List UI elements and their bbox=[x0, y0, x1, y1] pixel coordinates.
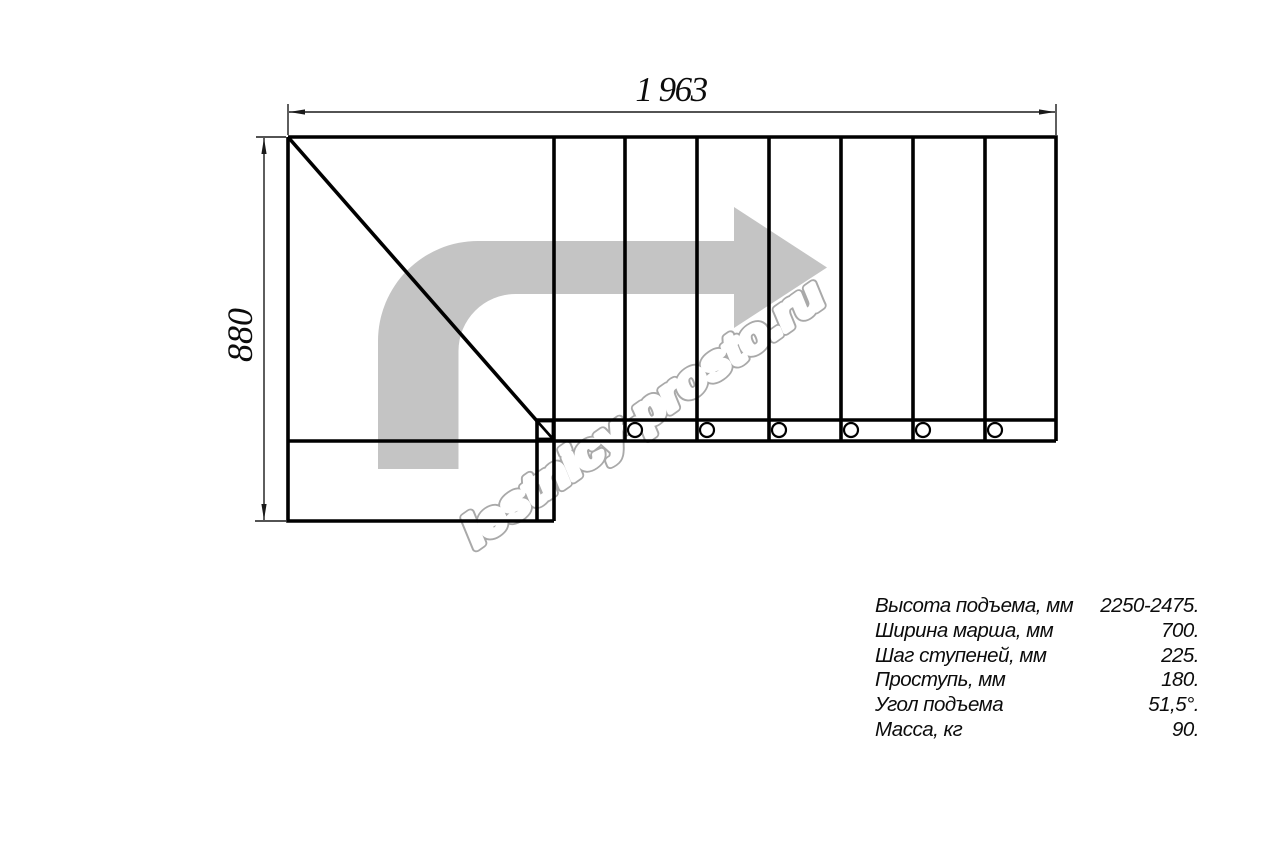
svg-text:880: 880 bbox=[220, 308, 260, 362]
svg-text:1 963: 1 963 bbox=[635, 70, 707, 109]
